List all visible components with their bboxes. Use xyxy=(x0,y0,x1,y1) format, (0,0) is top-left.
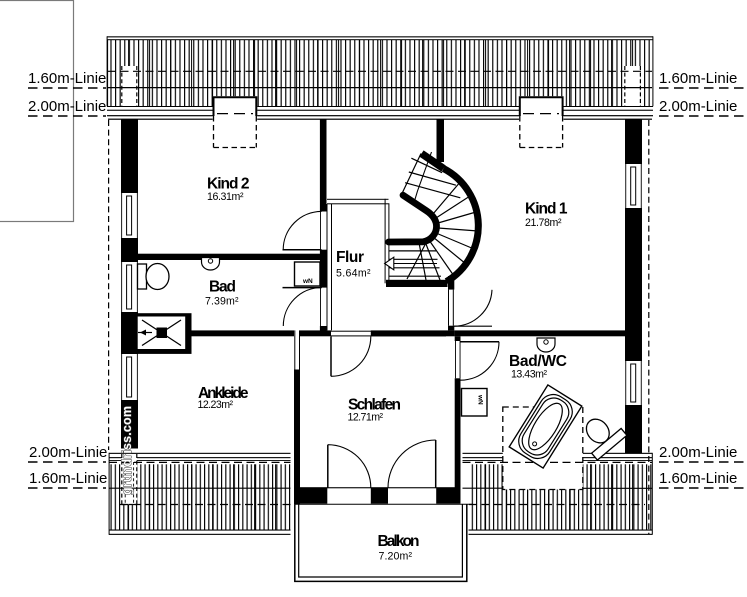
svg-text:1.60m-Linie: 1.60m-Linie xyxy=(29,470,107,487)
svg-text:2.00m-Linie: 2.00m-Linie xyxy=(29,444,107,461)
svg-text:21.78m²: 21.78m² xyxy=(525,217,562,229)
svg-text:1.60m-Linie: 1.60m-Linie xyxy=(659,70,737,87)
svg-text:2.00m-Linie: 2.00m-Linie xyxy=(28,98,106,115)
svg-text:grundriss.com: grundriss.com xyxy=(120,406,134,495)
svg-text:12.71m²: 12.71m² xyxy=(348,412,384,424)
svg-text:Bad: Bad xyxy=(209,279,236,296)
svg-text:Bad/WC: Bad/WC xyxy=(509,353,567,370)
svg-text:7.39m²: 7.39m² xyxy=(205,295,239,307)
svg-text:Kind 1: Kind 1 xyxy=(525,201,568,218)
svg-text:1.60m-Linie: 1.60m-Linie xyxy=(659,470,737,487)
svg-text:12.23m²: 12.23m² xyxy=(198,399,234,411)
svg-text:16.31m²: 16.31m² xyxy=(207,191,244,203)
svg-text:2.00m-Linie: 2.00m-Linie xyxy=(659,98,737,115)
svg-text:1.60m-Linie: 1.60m-Linie xyxy=(28,70,106,87)
svg-text:7.20m²: 7.20m² xyxy=(379,550,413,562)
svg-text:wN: wN xyxy=(477,394,484,405)
svg-text:Balkon: Balkon xyxy=(378,533,420,550)
svg-text:wN: wN xyxy=(302,278,313,285)
svg-text:2.00m-Linie: 2.00m-Linie xyxy=(659,444,737,461)
svg-text:Flur: Flur xyxy=(336,249,364,266)
svg-text:13.43m²: 13.43m² xyxy=(511,369,547,381)
svg-text:5.64m²: 5.64m² xyxy=(336,268,371,280)
